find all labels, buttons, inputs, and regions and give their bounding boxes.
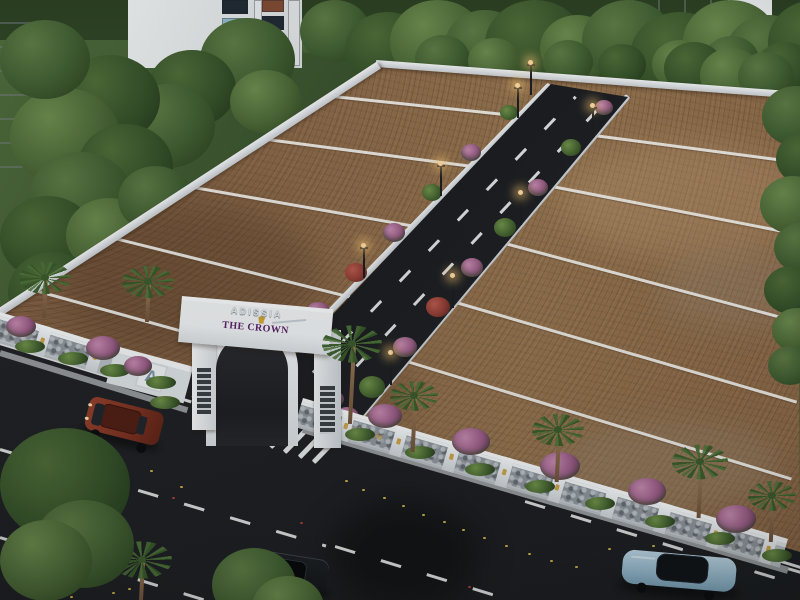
- aerial-render: A Think Adissia ADISSIA ♛ THE CROWN: [0, 0, 800, 600]
- tree: [0, 520, 92, 600]
- foreground-trees: [0, 0, 800, 600]
